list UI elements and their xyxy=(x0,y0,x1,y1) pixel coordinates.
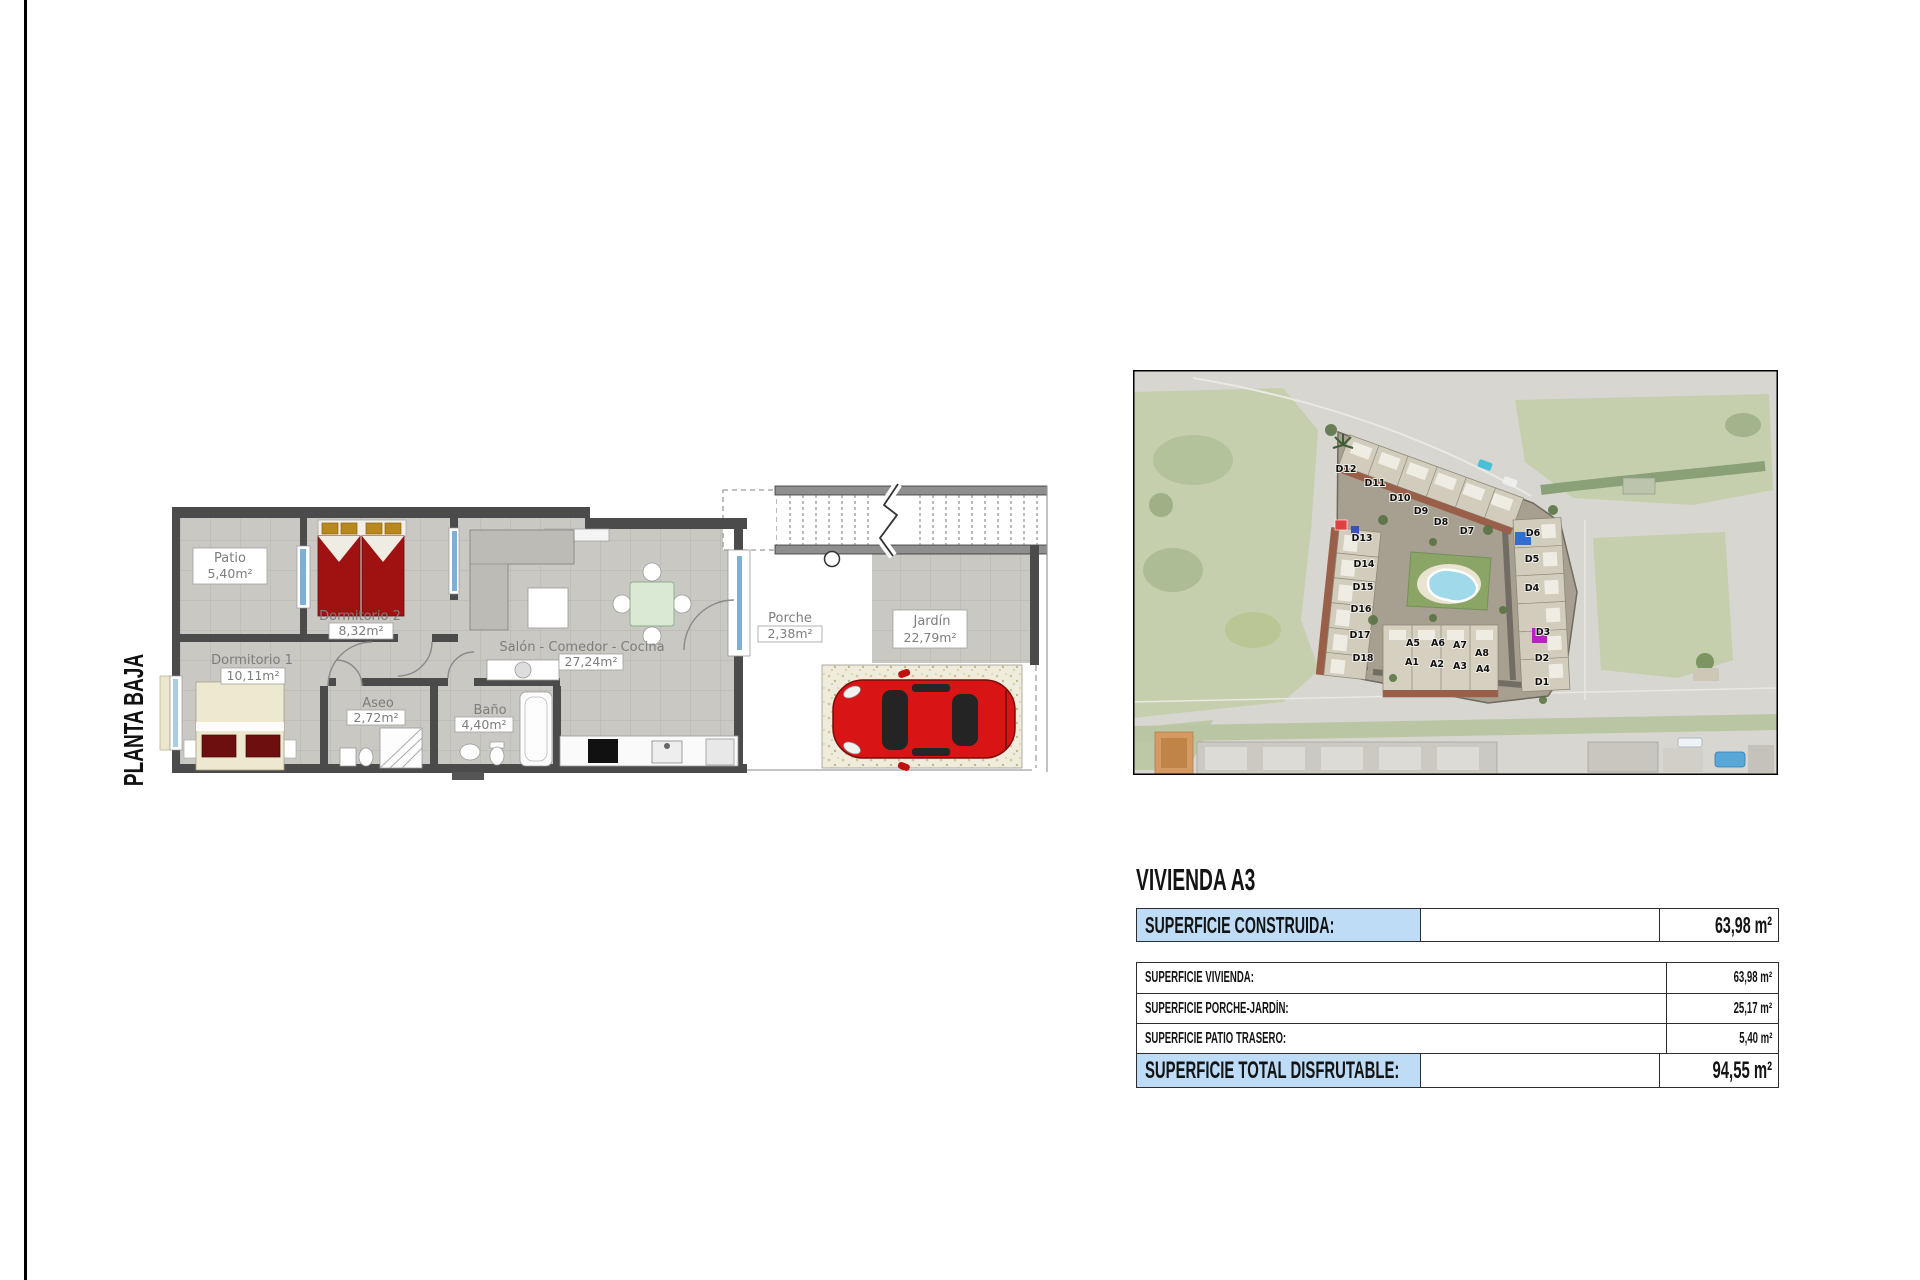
room-bano-name: Baño xyxy=(473,703,506,718)
unit-label: A5 xyxy=(1406,638,1420,649)
unit-label: A8 xyxy=(1475,648,1489,659)
row-superficie-construida: SUPERFICIE CONSTRUIDA: 63,98 m² xyxy=(1136,908,1779,942)
unit-label: D4 xyxy=(1525,583,1540,594)
room-patio-name: Patio xyxy=(214,551,246,566)
construida-label-cell: SUPERFICIE CONSTRUIDA: xyxy=(1137,909,1421,941)
unit-label: D12 xyxy=(1335,464,1356,475)
floor-plan: Patio 5,40m² Dormitorio 2 8,32m² Dormito… xyxy=(150,478,1070,790)
unit-label: D2 xyxy=(1535,653,1550,664)
patio-trasero-value: 5,40 m² xyxy=(1739,1030,1772,1048)
room-dorm1-name: Dormitorio 1 xyxy=(211,653,293,668)
construida-label: SUPERFICIE CONSTRUIDA: xyxy=(1145,912,1334,939)
cooktop xyxy=(588,739,618,763)
unit-label: D1 xyxy=(1535,677,1550,688)
room-salon-name: Salón - Comedor - Cocina xyxy=(499,640,664,655)
total-value: 94,55 m² xyxy=(1712,1057,1772,1085)
unit-label: D3 xyxy=(1536,627,1551,638)
unit-label: D15 xyxy=(1352,582,1373,593)
unit-label: D16 xyxy=(1350,604,1371,615)
construida-value-cell: 63,98 m² xyxy=(1660,909,1778,941)
car xyxy=(833,668,1015,772)
room-dorm1-area: 10,11m² xyxy=(227,668,280,683)
unit-label: A1 xyxy=(1405,657,1419,668)
summary-title-text: VIVIENDA A3 xyxy=(1136,862,1255,898)
row-superficie-porche-jardin: SUPERFICIE PORCHE-JARDÍN: 25,17 m² xyxy=(1137,993,1778,1023)
site-map: D12 D11 D10 D9 D8 D7 D13 D14 D15 D16 D17… xyxy=(1133,370,1778,775)
drawing-sheet: PLANTA BAJA xyxy=(0,0,1920,1280)
room-porche-area: 2,38m² xyxy=(767,626,812,641)
porche-jardin-value: 25,17 m² xyxy=(1734,1000,1772,1018)
detail-table: SUPERFICIE VIVIENDA: 63,98 m² SUPERFICIE… xyxy=(1136,962,1779,1088)
unit-label: A4 xyxy=(1476,664,1490,675)
red-marker xyxy=(1335,520,1347,530)
room-bano-area: 4,40m² xyxy=(461,717,506,732)
unit-label: D18 xyxy=(1352,653,1373,664)
bedroom2-beds xyxy=(318,520,406,616)
vivienda-label: SUPERFICIE VIVIENDA: xyxy=(1145,969,1254,987)
row-superficie-total: SUPERFICIE TOTAL DISFRUTABLE: 94,55 m² xyxy=(1137,1053,1778,1087)
room-jardin-name: Jardín xyxy=(912,614,950,629)
row-superficie-vivienda: SUPERFICIE VIVIENDA: 63,98 m² xyxy=(1137,963,1778,993)
room-dorm2-area: 8,32m² xyxy=(338,623,383,638)
row-superficie-patio-trasero: SUPERFICIE PATIO TRASERO: 5,40 m² xyxy=(1137,1023,1778,1053)
room-aseo-area: 2,72m² xyxy=(353,710,398,725)
room-patio-area: 5,40m² xyxy=(207,566,252,581)
room-porche-name: Porche xyxy=(768,611,812,626)
room-aseo-name: Aseo xyxy=(362,696,394,711)
unit-label: D9 xyxy=(1414,506,1429,517)
construida-value: 63,98 m² xyxy=(1715,912,1772,939)
bedroom1-bed xyxy=(184,682,296,770)
unit-label: D14 xyxy=(1353,559,1374,570)
room-dorm2-name: Dormitorio 2 xyxy=(319,609,401,624)
total-label: SUPERFICIE TOTAL DISFRUTABLE: xyxy=(1145,1057,1399,1085)
porch-column xyxy=(825,552,840,567)
summary-title: VIVIENDA A3 xyxy=(1136,862,1779,908)
unit-label: D11 xyxy=(1364,478,1385,489)
porche-jardin-label: SUPERFICIE PORCHE-JARDÍN: xyxy=(1145,1000,1289,1018)
unit-label: A2 xyxy=(1430,659,1444,670)
room-jardin-area: 22,79m² xyxy=(904,630,957,645)
unit-label: A6 xyxy=(1431,638,1445,649)
unit-label: D6 xyxy=(1526,528,1541,539)
unit-label: D7 xyxy=(1460,526,1475,537)
surface-summary: VIVIENDA A3 SUPERFICIE CONSTRUIDA: 63,98… xyxy=(1136,862,1779,1088)
vivienda-value: 63,98 m² xyxy=(1734,969,1772,987)
floor-title-text: PLANTA BAJA xyxy=(118,654,150,786)
unit-label: D5 xyxy=(1525,554,1540,565)
unit-label: D8 xyxy=(1434,517,1449,528)
unit-label: A7 xyxy=(1453,640,1467,651)
patio-trasero-label: SUPERFICIE PATIO TRASERO: xyxy=(1145,1030,1286,1048)
unit-label: D13 xyxy=(1351,533,1372,544)
room-salon-area: 27,24m² xyxy=(565,654,618,669)
unit-label: D17 xyxy=(1349,630,1370,641)
page-border-line xyxy=(24,0,27,1280)
unit-label: D10 xyxy=(1389,493,1410,504)
construida-mid-cell xyxy=(1421,909,1660,941)
unit-label: A3 xyxy=(1453,661,1467,672)
